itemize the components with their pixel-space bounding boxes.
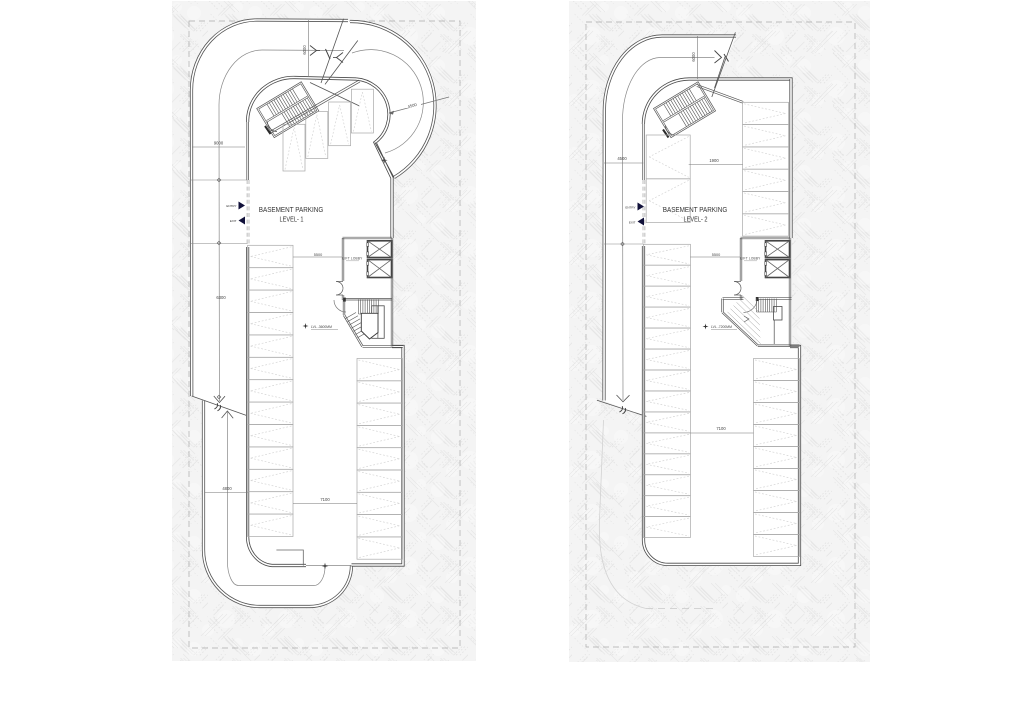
svg-text:7100: 7100 [320,497,330,502]
svg-text:6000: 6000 [691,52,696,62]
svg-text:4800: 4800 [222,486,232,491]
svg-text:BASEMENT PARKING: BASEMENT PARKING [663,207,728,214]
svg-text:6000: 6000 [302,45,307,55]
svg-text:9000: 9000 [214,141,224,146]
svg-text:LIFT LOBBY: LIFT LOBBY [342,257,363,261]
svg-text:LEVEL- 1: LEVEL- 1 [280,217,304,224]
svg-text:6300: 6300 [216,295,226,300]
svg-text:LEVEL- 2: LEVEL- 2 [684,217,708,224]
svg-text:LIFT LOBBY: LIFT LOBBY [740,257,761,261]
svg-text:LVL -3600MM: LVL -3600MM [311,325,332,329]
svg-text:7100: 7100 [716,426,726,431]
svg-text:5500: 5500 [314,253,322,257]
svg-text:1900: 1900 [709,158,719,163]
svg-text:EXIT: EXIT [230,219,237,223]
svg-text:4500: 4500 [617,156,627,161]
svg-text:5500: 5500 [712,253,720,257]
svg-text:BASEMENT PARKING: BASEMENT PARKING [259,207,324,214]
svg-text:EXIT: EXIT [629,221,636,225]
svg-text:ENTRY: ENTRY [625,206,635,210]
svg-text:ENTRY: ENTRY [226,204,236,208]
svg-text:LVL -7200MM: LVL -7200MM [711,325,732,329]
